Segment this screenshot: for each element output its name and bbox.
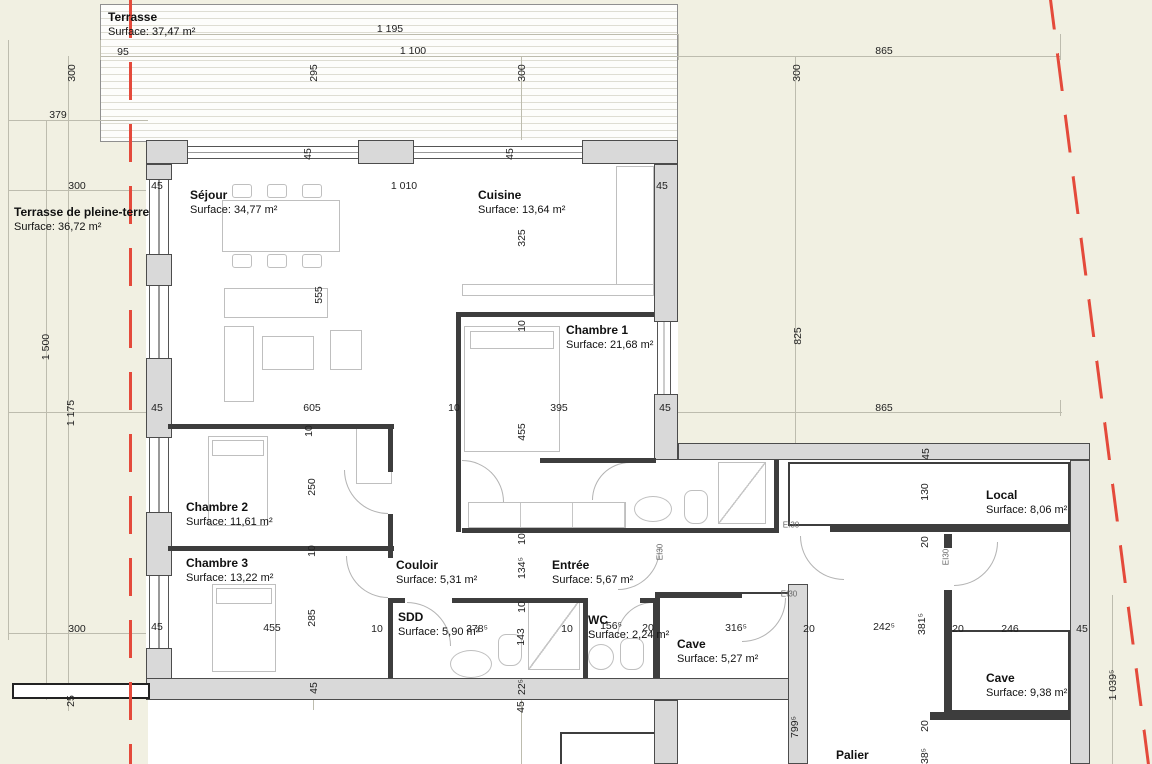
dimension-label: 1 500 [40, 334, 52, 360]
dim-line [130, 34, 678, 35]
pillow [212, 440, 264, 456]
dimension-label: 1 100 [400, 45, 426, 57]
dimension-label: 799⁵ [789, 716, 801, 738]
dimension-label: 10 [561, 623, 573, 635]
dimension-label: 95 [117, 46, 129, 58]
dimension-label: 1 039⁵ [1107, 670, 1119, 701]
chair [302, 254, 322, 268]
wall-segment [582, 140, 678, 164]
dimension-label: 285 [306, 609, 318, 627]
room-surface: Surface: 21,68 m² [566, 339, 653, 351]
room-label: LocalSurface: 8,06 m² [986, 488, 1067, 516]
room-name: Chambre 2 [186, 500, 273, 514]
dimension-label: 45 [308, 682, 320, 694]
room-surface: Surface: 8,06 m² [986, 504, 1067, 516]
partition-wall [168, 546, 394, 551]
property-boundary-line [129, 0, 132, 764]
room-label: Palier [836, 748, 869, 762]
partition-wall [944, 590, 952, 720]
room-label: CaveSurface: 9,38 m² [986, 671, 1067, 699]
dimension-label: 20 [952, 623, 964, 635]
room-label: Chambre 3Surface: 13,22 m² [186, 556, 273, 584]
wall-segment [146, 254, 172, 286]
dimension-label: 156⁵ [600, 620, 622, 632]
dimension-label: 20 [919, 720, 931, 732]
room-name: Chambre 1 [566, 323, 653, 337]
partition-wall [655, 592, 742, 598]
partition-wall [930, 712, 1070, 720]
dimension-label: 395 [550, 402, 568, 414]
dimension-label: 22⁵ [516, 679, 528, 695]
wall-segment [358, 140, 414, 164]
coffee-table [262, 336, 314, 370]
room-name: Cuisine [478, 188, 565, 202]
wall-segment [146, 140, 188, 164]
dimension-label: 325 [516, 229, 528, 247]
dim-line [1060, 400, 1061, 416]
partition-wall [388, 598, 393, 678]
room-name: Cave [986, 671, 1067, 685]
french-door [149, 286, 169, 358]
dimension-label: 45 [151, 180, 163, 192]
dimension-label: 10 [306, 545, 318, 557]
room-name: Palier [836, 748, 869, 762]
room-surface: Surface: 5,27 m² [677, 653, 758, 665]
dimension-label: 25 [65, 695, 77, 707]
room-label: CuisineSurface: 13,64 m² [478, 188, 565, 216]
kitchen-counter [462, 284, 654, 296]
dim-line [100, 40, 101, 60]
wall-segment [1070, 460, 1090, 764]
dimension-label: 10 [303, 425, 315, 437]
dimension-label: 246 [1001, 623, 1019, 635]
room-surface: Surface: 11,61 m² [186, 516, 273, 528]
dimension-label: 20 [803, 623, 815, 635]
dimension-label: 605 [303, 402, 321, 414]
room-label: Chambre 2Surface: 11,61 m² [186, 500, 273, 528]
wall-segment [678, 443, 1090, 460]
dimension-label: 1 010 [391, 180, 417, 192]
dimension-label: 300 [68, 623, 86, 635]
partition-wall [388, 514, 393, 558]
partition-wall [774, 460, 779, 532]
partition-wall [830, 526, 1070, 532]
dimension-label: 10 [448, 402, 460, 414]
dimension-label: 455 [516, 423, 528, 441]
partition-wall [388, 424, 393, 472]
partition-wall [462, 528, 632, 533]
dimension-label: 45 [659, 402, 671, 414]
dimension-label: 134⁵ [516, 557, 528, 579]
room-surface: Surface: 34,77 m² [190, 204, 277, 216]
dim-line [678, 56, 1060, 57]
dimension-label: 45 [302, 148, 314, 160]
fire-rating-label: EI30 [781, 590, 797, 599]
dimension-label: 10 [516, 320, 528, 332]
partition-wall [456, 462, 461, 532]
room-surface: Surface: 5,67 m² [552, 574, 633, 586]
partition-wall [632, 528, 779, 533]
pillow [470, 331, 554, 349]
wall-segment [654, 700, 678, 764]
dimension-label: 10 [516, 533, 528, 545]
dimension-label: 555 [313, 286, 325, 304]
dimension-label: 143 [515, 628, 527, 646]
dim-line [8, 120, 148, 121]
toilet [620, 638, 644, 670]
dimension-label: 316⁵ [725, 622, 747, 634]
partition-wall [393, 598, 405, 603]
dim-line [1060, 34, 1061, 60]
dim-line [100, 56, 678, 57]
dimension-label: 300 [68, 180, 86, 192]
dimension-label: 45 [515, 701, 527, 713]
room-name: Local [986, 488, 1067, 502]
room-name: Séjour [190, 188, 277, 202]
dimension-label: 45 [151, 402, 163, 414]
window [657, 322, 671, 394]
toilet [684, 490, 708, 524]
partition-wall [461, 312, 654, 317]
dimension-label: 295 [308, 64, 320, 82]
partition-wall [456, 312, 461, 462]
wall-segment [146, 164, 172, 180]
dimension-label: 20 [919, 536, 931, 548]
closet [468, 502, 626, 528]
dim-line [678, 34, 679, 60]
sink [588, 644, 614, 670]
room-surface: Surface: 37,47 m² [108, 26, 195, 38]
dimension-label: 250 [306, 478, 318, 496]
room-label: Terrasse de pleine-terreSurface: 36,72 m… [14, 205, 149, 233]
room-surface: Surface: 36,72 m² [14, 221, 149, 233]
dimension-label: 381⁵ [916, 613, 928, 635]
room-label: CaveSurface: 5,27 m² [677, 637, 758, 665]
terrain-right [678, 142, 1152, 443]
room-label: EntréeSurface: 5,67 m² [552, 558, 633, 586]
room-label: SéjourSurface: 34,77 m² [190, 188, 277, 216]
kitchen-counter [616, 166, 654, 288]
sink [450, 650, 492, 678]
room-name: Entrée [552, 558, 633, 572]
wall-segment [146, 512, 172, 576]
french-door [149, 438, 169, 512]
room-label: Chambre 1Surface: 21,68 m² [566, 323, 653, 351]
dimension-label: 1 195 [377, 23, 403, 35]
dimension-label: 45 [920, 448, 932, 460]
dimension-label: 45 [504, 148, 516, 160]
chair [232, 254, 252, 268]
room-surface: Surface: 9,38 m² [986, 687, 1067, 699]
shower [718, 462, 766, 524]
fire-rating-label: EI30 [656, 544, 665, 560]
dim-line [68, 56, 69, 711]
dimension-label: 865 [875, 402, 893, 414]
dimension-label: 825 [792, 327, 804, 345]
partition-wall [168, 424, 394, 429]
fire-rating-label: EI30 [942, 549, 951, 565]
pillow [216, 588, 272, 604]
dimension-label: 45 [1076, 623, 1088, 635]
chair [267, 254, 287, 268]
cave-room-outline [658, 592, 790, 680]
dimension-label: 455 [263, 622, 281, 634]
dim-line [8, 40, 9, 640]
room-surface: Surface: 5,31 m² [396, 574, 477, 586]
partition-wall [944, 534, 952, 548]
armchair [330, 330, 362, 370]
chair [302, 184, 322, 198]
dimension-label: 45 [656, 180, 668, 192]
wall-segment [146, 678, 796, 700]
dimension-label: 865 [875, 45, 893, 57]
dimension-label: 130 [919, 483, 931, 501]
sofa [224, 326, 254, 402]
dimension-label: 10 [371, 623, 383, 635]
floor-plan: TerrasseSurface: 37,47 m²Terrasse de ple… [0, 0, 1152, 764]
dimension-label: 379 [49, 109, 67, 121]
dimension-label: 242⁵ [873, 621, 895, 633]
dimension-label: 378⁵ [466, 623, 488, 635]
dimension-label: 300 [791, 64, 803, 82]
shower [528, 600, 580, 670]
sink [634, 496, 672, 522]
room-name: Cave [677, 637, 758, 651]
room-label: CouloirSurface: 5,31 m² [396, 558, 477, 586]
room-name: Terrasse [108, 10, 195, 24]
partition-wall [540, 458, 656, 463]
dimension-label: 1 175 [65, 400, 77, 426]
french-door [149, 576, 169, 648]
dimension-label: 10 [516, 601, 528, 613]
window [414, 146, 582, 159]
room-surface: Surface: 13,64 m² [478, 204, 565, 216]
dimension-label: 45 [151, 621, 163, 633]
dimension-label: 300 [516, 64, 528, 82]
room-name: Terrasse de pleine-terre [14, 205, 149, 219]
fire-rating-label: EI30 [783, 521, 799, 530]
room-surface: Surface: 13,22 m² [186, 572, 273, 584]
dimension-label: 38⁵ [919, 748, 931, 764]
dimension-label: 20 [642, 622, 654, 634]
stairwell-outline [560, 732, 656, 764]
room-name: Couloir [396, 558, 477, 572]
room-name: Chambre 3 [186, 556, 273, 570]
room-label: TerrasseSurface: 37,47 m² [108, 10, 195, 38]
room-name: SDD [398, 610, 479, 624]
dimension-label: 300 [66, 64, 78, 82]
window [188, 146, 358, 159]
